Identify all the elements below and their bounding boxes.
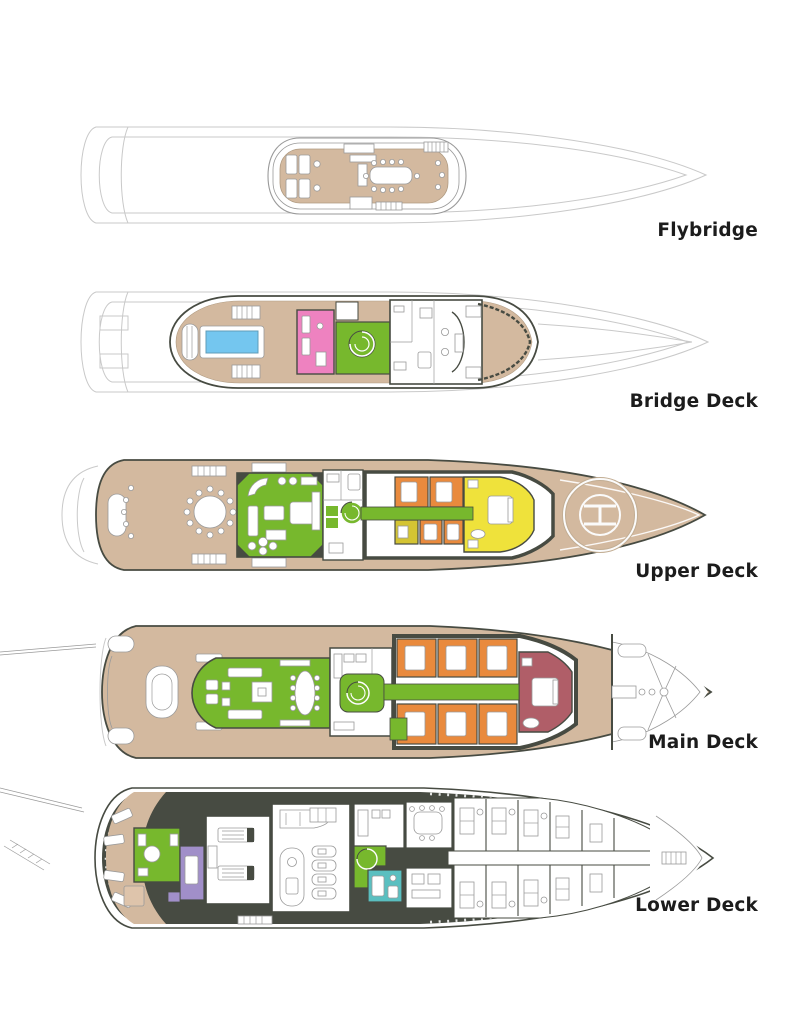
deck-label-bridge: Bridge Deck (0, 391, 758, 412)
upper-corridor (361, 507, 473, 520)
main-master-suite (519, 652, 572, 732)
upper-mid-rooms (323, 470, 363, 560)
main-stair-lobby (340, 674, 384, 712)
yacht-deck-plans-page: Flybridge (0, 0, 800, 1036)
deck-label-lower: Lower Deck (0, 895, 758, 916)
gangway-lines (0, 788, 84, 870)
main-salon (192, 658, 330, 728)
crew-corridor (448, 851, 658, 865)
main-dining-table (290, 671, 319, 715)
bridge-deck-plan (0, 282, 800, 402)
lower-bow (650, 810, 705, 906)
upper-owner-suite (464, 477, 534, 552)
upper-sky-lounge (237, 473, 323, 557)
deck-label-flybridge: Flybridge (0, 220, 758, 241)
deck-label-upper: Upper Deck (0, 561, 758, 582)
passerelle (0, 644, 96, 655)
plunge-pool (206, 331, 258, 353)
bridge-gym-room (297, 310, 334, 374)
upper-stern-ghost (62, 466, 98, 564)
deck-label-main: Main Deck (0, 732, 758, 753)
spiral-staircase-icon (349, 331, 375, 357)
engine-room (206, 816, 270, 904)
